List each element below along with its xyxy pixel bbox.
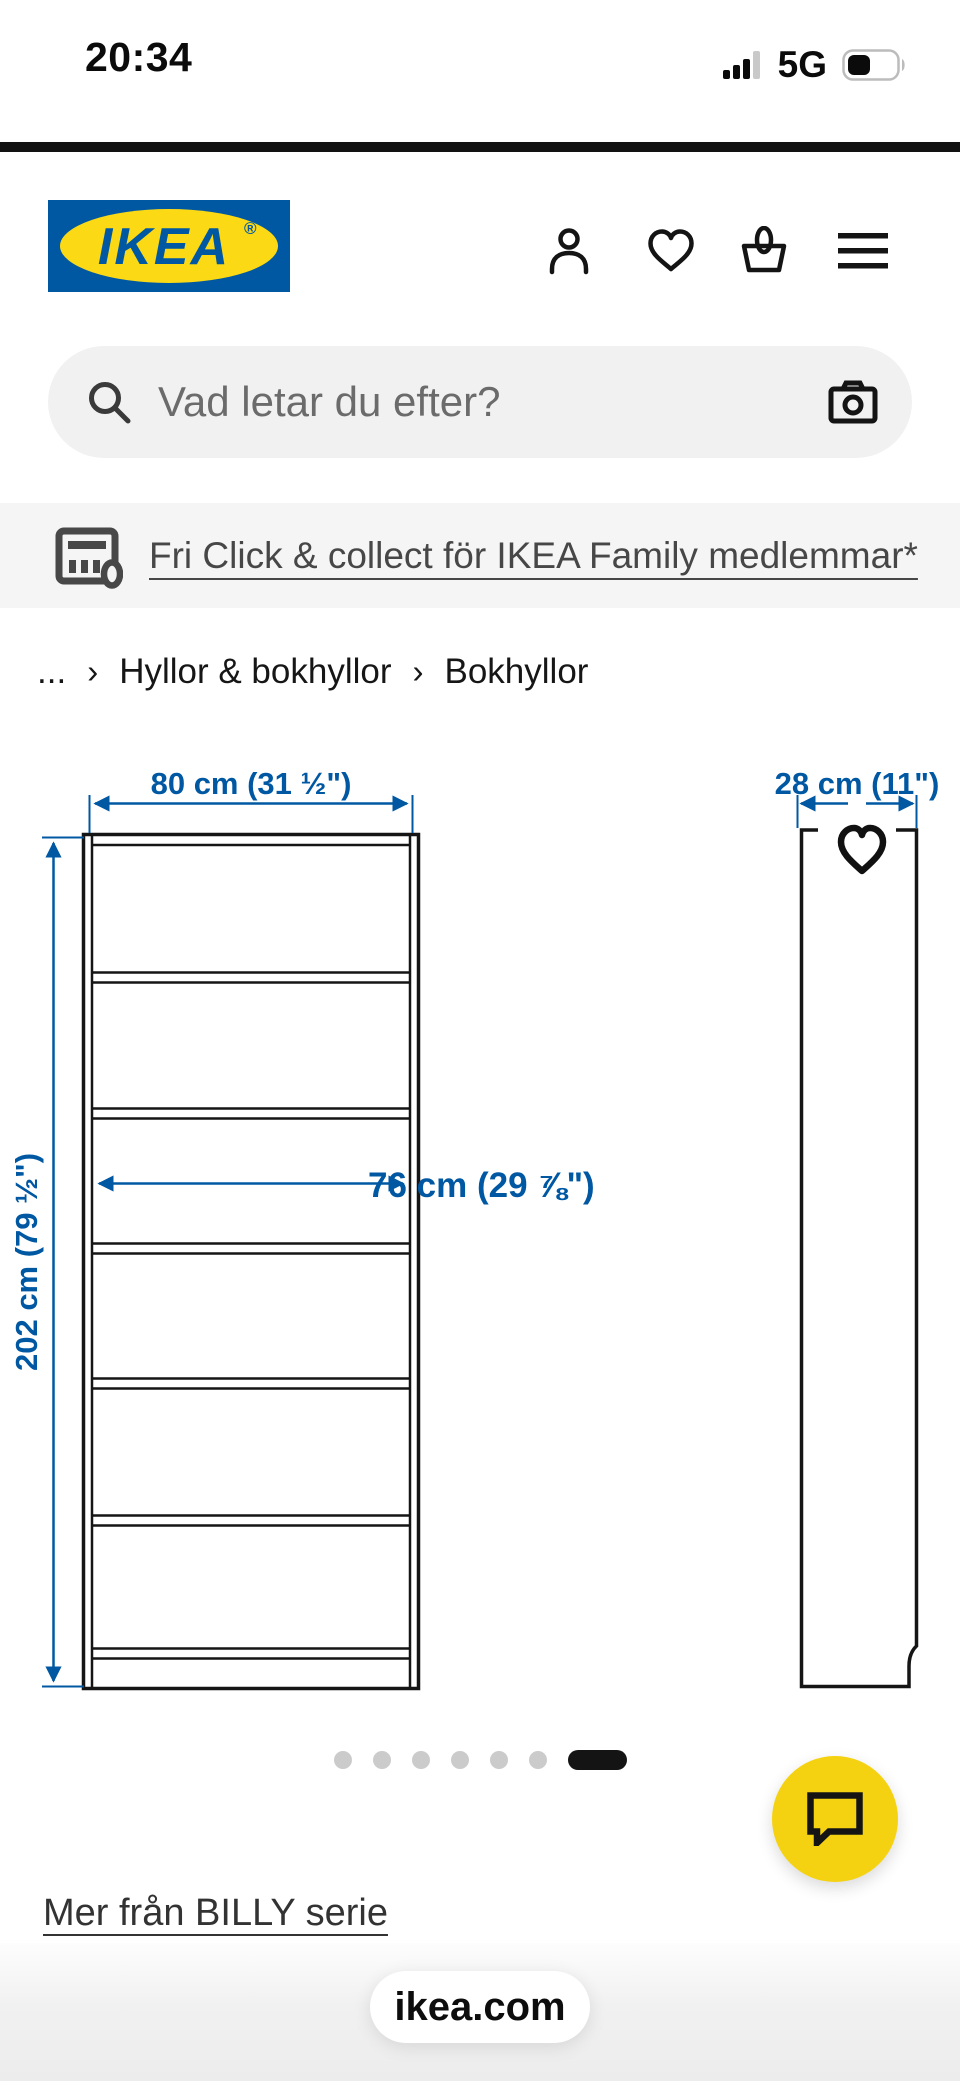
site-url: ikea.com — [394, 1985, 565, 2030]
ikea-mobile-page: 20:34 5G IKEA ® — [0, 0, 960, 2081]
product-dimension-diagram[interactable]: 80 cm (31 ½") 202 cm (79 ½") 76 cm (29 ⅞… — [0, 750, 960, 1720]
heart-icon — [646, 228, 696, 274]
ikea-logo[interactable]: IKEA ® — [48, 200, 290, 292]
carousel-dot-active[interactable] — [568, 1750, 627, 1770]
breadcrumb-item-hyllor[interactable]: Hyllor & bokhyllor — [119, 652, 391, 692]
browser-url-pill[interactable]: ikea.com — [370, 1971, 590, 2043]
breadcrumb-collapsed[interactable]: ... — [37, 652, 66, 692]
breadcrumb-item-bokhyllor[interactable]: Bokhyllor — [445, 652, 589, 692]
carousel-dot[interactable] — [412, 1751, 430, 1769]
click-collect-icon — [55, 523, 123, 589]
more-from-series-link[interactable]: Mer från BILLY serie — [43, 1892, 388, 1935]
person-icon — [546, 227, 592, 275]
status-bar-right: 5G — [723, 44, 908, 86]
network-type: 5G — [778, 44, 827, 86]
search-icon — [86, 379, 132, 425]
chat-button[interactable] — [772, 1756, 898, 1882]
promo-banner: Fri Click & collect för IKEA Family medl… — [0, 503, 960, 608]
chevron-right-icon: › — [83, 653, 102, 691]
camera-icon — [828, 380, 878, 424]
search-bar[interactable] — [48, 346, 912, 458]
inner-width-dimension-label: 76 cm (29 ⅞") — [368, 1166, 595, 1205]
bookcase-side-view — [802, 828, 917, 1687]
height-dimension-label: 202 cm (79 ½") — [9, 1153, 44, 1371]
cellular-signal-icon — [723, 51, 763, 79]
search-input[interactable] — [158, 378, 828, 426]
logo-wordmark: IKEA — [98, 218, 230, 276]
favorites-button[interactable] — [646, 226, 696, 276]
carousel-dot[interactable] — [490, 1751, 508, 1769]
carousel-dot[interactable] — [334, 1751, 352, 1769]
depth-dimension-label: 28 cm (11") — [775, 766, 940, 801]
width-dimension-label: 80 cm (31 ½") — [151, 766, 352, 801]
page-top-divider — [0, 142, 960, 152]
carousel-dot[interactable] — [373, 1751, 391, 1769]
registered-mark: ® — [244, 219, 257, 238]
dimension-lines — [42, 795, 917, 1687]
basket-icon — [739, 226, 789, 276]
visual-search-button[interactable] — [828, 380, 878, 424]
breadcrumb: ... › Hyllor & bokhyllor › Bokhyllor — [37, 652, 588, 692]
clock: 20:34 — [85, 34, 192, 81]
cart-button[interactable] — [739, 226, 789, 276]
chat-bubble-icon — [807, 1792, 863, 1846]
favorite-heart-icon — [841, 828, 883, 871]
carousel-dot[interactable] — [529, 1751, 547, 1769]
profile-button[interactable] — [544, 226, 594, 276]
battery-icon — [842, 49, 908, 81]
carousel-dot[interactable] — [451, 1751, 469, 1769]
menu-button[interactable] — [838, 226, 888, 276]
click-collect-link[interactable]: Fri Click & collect för IKEA Family medl… — [149, 535, 918, 577]
hamburger-icon — [838, 233, 888, 269]
chevron-right-icon: › — [409, 653, 428, 691]
bookcase-front-view — [84, 835, 419, 1689]
